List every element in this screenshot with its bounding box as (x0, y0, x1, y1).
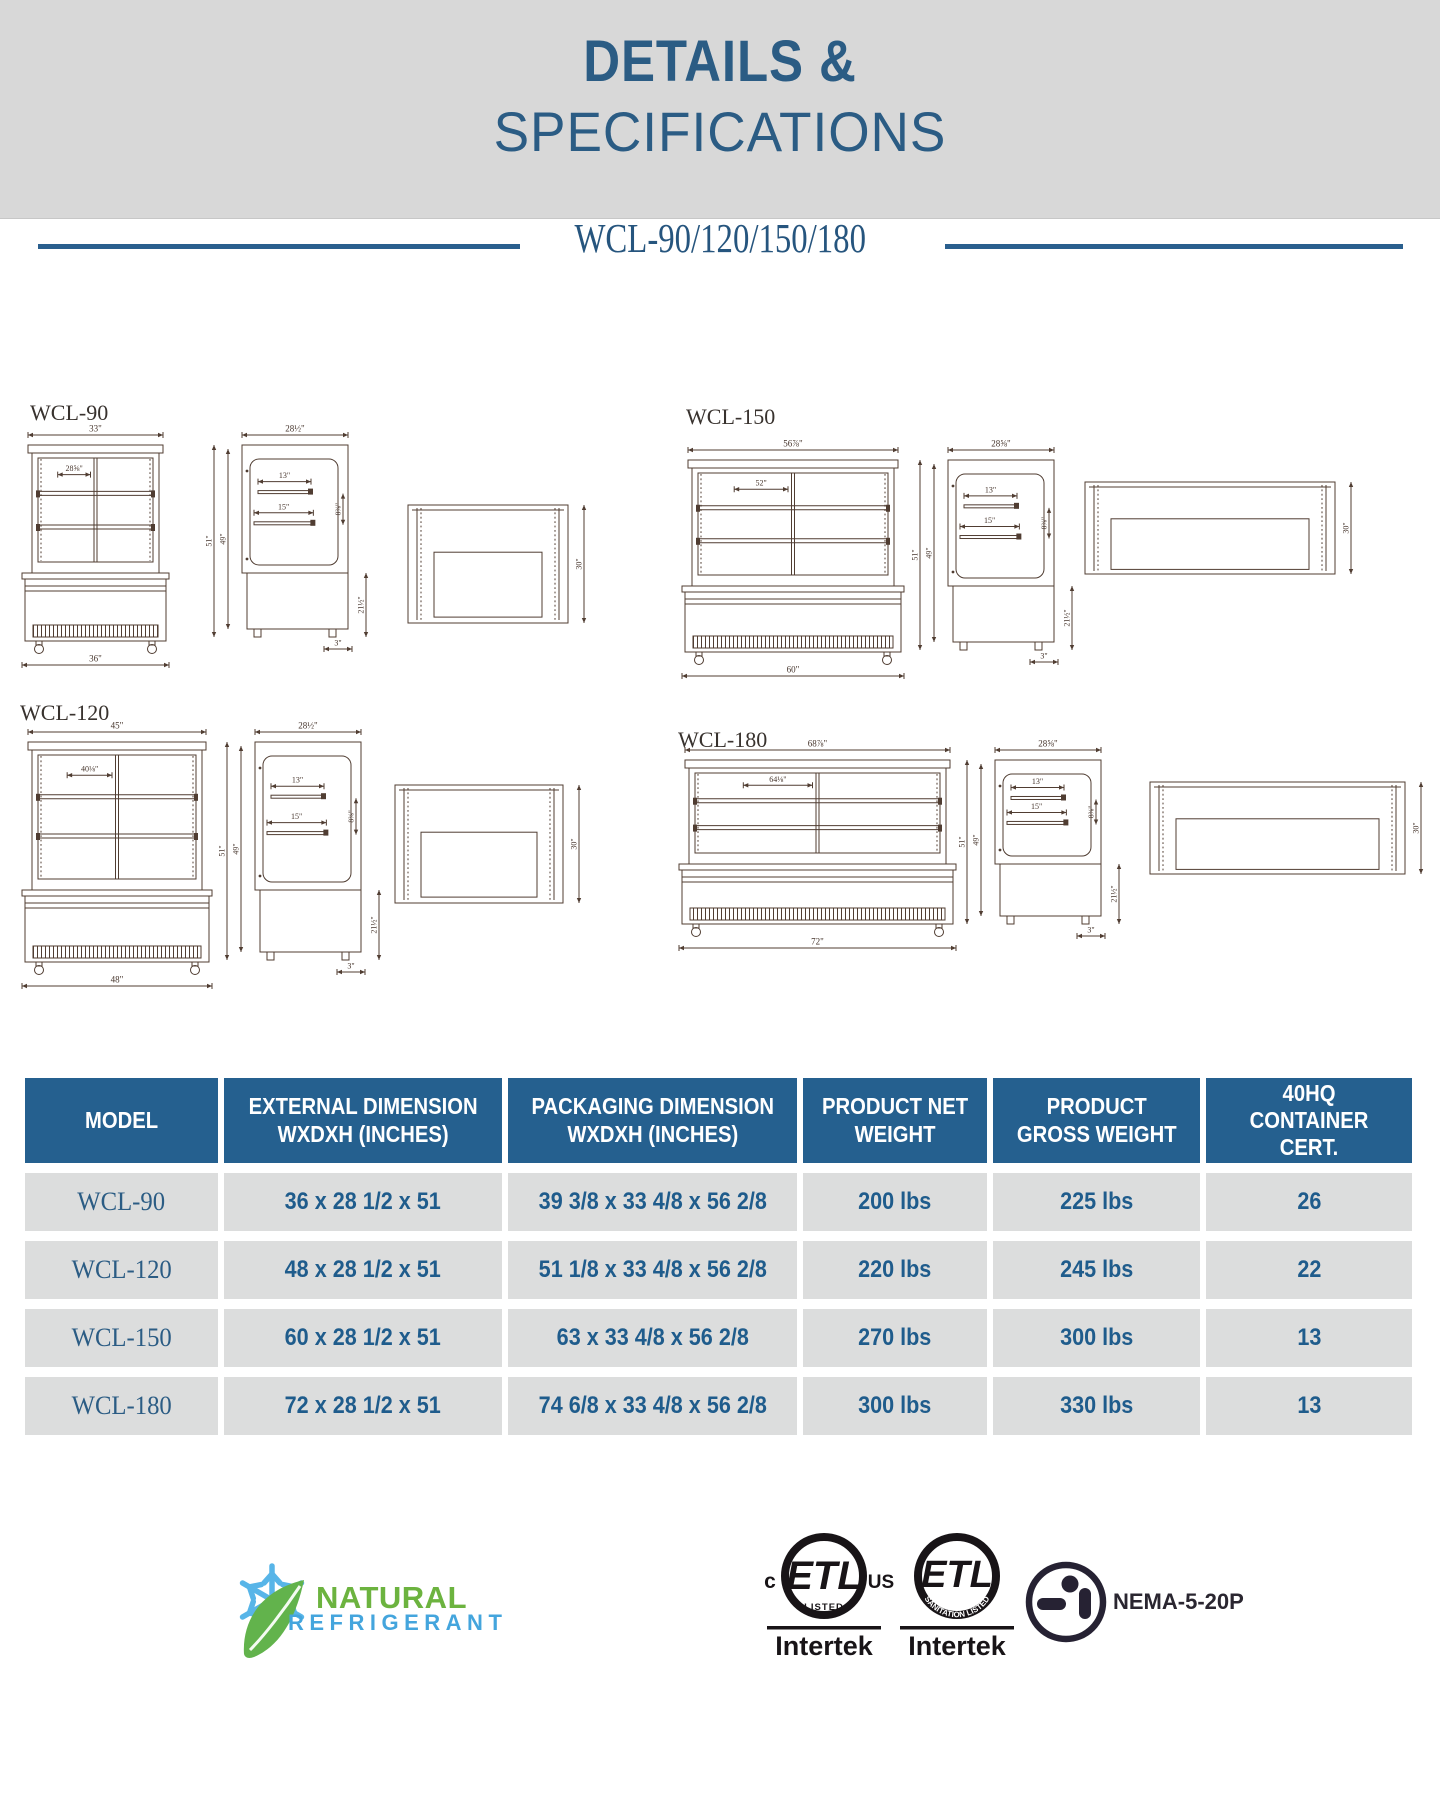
col-header-net: PRODUCT NET WEIGHT (803, 1078, 987, 1163)
svg-text:15": 15" (278, 502, 289, 511)
svg-text:13": 13" (985, 485, 996, 494)
natural-refrigerant-logo: NATURAL REFRIGERANT (222, 1560, 522, 1655)
svg-text:21½": 21½" (357, 596, 366, 613)
wcl-90-cert: 26 (1206, 1173, 1412, 1231)
svg-text:64⅛": 64⅛" (769, 775, 786, 784)
svg-text:49": 49" (219, 533, 228, 544)
svg-text:33": 33" (89, 424, 102, 434)
wcl-150-technical-drawing: WCL-15056⅞"52"60"28⅝"13"15"8⅜"21½"3"51"4… (682, 404, 1353, 679)
svg-text:ETL: ETL (786, 1554, 862, 1598)
svg-text:3": 3" (1040, 652, 1047, 661)
svg-text:60": 60" (787, 665, 800, 675)
wcl-180-packaging: 74 6/8 x 33 4/8 x 56 2/8 (508, 1377, 797, 1435)
wcl-180-model: WCL-180 (25, 1377, 218, 1435)
svg-text:Intertek: Intertek (775, 1631, 874, 1660)
svg-text:SANITATION LISTED: SANITATION LISTED (923, 1594, 992, 1619)
svg-text:48": 48" (111, 975, 124, 985)
wcl-150-cert: 13 (1206, 1309, 1412, 1367)
wcl-180-gross: 330 lbs (993, 1377, 1200, 1435)
wcl-90-gross: 225 lbs (993, 1173, 1200, 1231)
svg-text:28⅝": 28⅝" (65, 464, 82, 473)
technical-drawings: WCL-9033"28⅝"36"28½"13"15"8⅜"21½"3"51"49… (0, 0, 1440, 1040)
svg-text:30": 30" (575, 558, 584, 569)
wcl-120-net: 220 lbs (803, 1241, 987, 1299)
svg-text:13": 13" (292, 776, 303, 785)
wcl-180-technical-drawing: WCL-18068⅞"64⅛"72"28⅝"13"15"8⅜"21½"3"51"… (678, 727, 1423, 951)
svg-text:51": 51" (205, 535, 214, 546)
svg-text:30": 30" (570, 838, 579, 849)
wcl-120-gross: 245 lbs (993, 1241, 1200, 1299)
svg-text:56⅞": 56⅞" (783, 439, 803, 449)
svg-text:WCL-90: WCL-90 (30, 400, 108, 425)
svg-text:45": 45" (111, 721, 124, 731)
svg-text:30": 30" (1342, 522, 1351, 533)
wcl-180-external: 72 x 28 1/2 x 51 (224, 1377, 502, 1435)
svg-text:21½": 21½" (1063, 609, 1072, 626)
wcl-150-external: 60 x 28 1/2 x 51 (224, 1309, 502, 1367)
spec-table: MODELEXTERNAL DIMENSION WXDXH (INCHES)PA… (25, 1078, 1412, 1435)
wcl-180-net: 300 lbs (803, 1377, 987, 1435)
svg-text:8⅜": 8⅜" (347, 810, 356, 822)
wcl-180-cert: 13 (1206, 1377, 1412, 1435)
etl-listed-us-mark: ETL c US LISTED Intertek (739, 1526, 909, 1660)
svg-text:c: c (764, 1570, 776, 1593)
svg-text:51": 51" (218, 845, 227, 856)
svg-text:8⅜": 8⅜" (1087, 806, 1096, 818)
wcl-90-technical-drawing: WCL-9033"28⅝"36"28½"13"15"8⅜"21½"3"51"49… (22, 400, 586, 668)
wcl-90-model: WCL-90 (25, 1173, 218, 1231)
wcl-150-packaging: 63 x 33 4/8 x 56 2/8 (508, 1309, 797, 1367)
refrigerant-word: REFRIGERANT (288, 1610, 507, 1636)
wcl-90-packaging: 39 3/8 x 33 4/8 x 56 2/8 (508, 1173, 797, 1231)
svg-text:15": 15" (291, 812, 302, 821)
col-header-model: MODEL (25, 1078, 218, 1163)
svg-text:36": 36" (89, 654, 102, 664)
svg-text:28⅝": 28⅝" (1038, 739, 1058, 749)
svg-text:68⅞": 68⅞" (808, 739, 828, 749)
col-header-cert: 40HQ CONTAINER CERT. (1206, 1078, 1412, 1163)
wcl-90-external: 36 x 28 1/2 x 51 (224, 1173, 502, 1231)
svg-text:28½": 28½" (285, 424, 305, 434)
svg-text:15": 15" (1031, 802, 1042, 811)
svg-text:49": 49" (232, 843, 241, 854)
wcl-90-net: 200 lbs (803, 1173, 987, 1231)
svg-text:WCL-150: WCL-150 (686, 404, 775, 429)
svg-text:15": 15" (984, 516, 995, 525)
svg-text:WCL-120: WCL-120 (20, 700, 109, 725)
svg-text:30": 30" (1412, 822, 1421, 833)
svg-text:3": 3" (347, 962, 354, 971)
svg-text:40⅛": 40⅛" (81, 765, 98, 774)
svg-text:13": 13" (279, 471, 290, 480)
svg-text:21½": 21½" (370, 916, 379, 933)
svg-text:52": 52" (755, 479, 766, 488)
svg-text:Intertek: Intertek (908, 1631, 1007, 1660)
svg-text:28⅝": 28⅝" (991, 439, 1011, 449)
svg-text:28½": 28½" (298, 721, 318, 731)
wcl-150-model: WCL-150 (25, 1309, 218, 1367)
svg-text:51": 51" (958, 836, 967, 847)
svg-text:49": 49" (972, 834, 981, 845)
nema-label: NEMA-5-20P (1113, 1589, 1244, 1615)
wcl-120-cert: 22 (1206, 1241, 1412, 1299)
svg-text:49": 49" (925, 547, 934, 558)
svg-text:72": 72" (811, 937, 824, 947)
svg-text:ETL: ETL (921, 1554, 993, 1596)
etl-sanitation-mark: ETL SANITATION LISTED Intertek (887, 1526, 1027, 1660)
col-header-packaging: PACKAGING DIMENSION WXDXH (INCHES) (508, 1078, 797, 1163)
svg-text:LISTED: LISTED (804, 1602, 844, 1613)
svg-text:3": 3" (334, 639, 341, 648)
svg-text:13": 13" (1032, 777, 1043, 786)
nema-5-20p-icon (1023, 1559, 1109, 1645)
svg-text:8⅜": 8⅜" (334, 503, 343, 515)
wcl-120-packaging: 51 1/8 x 33 4/8 x 56 2/8 (508, 1241, 797, 1299)
svg-text:3": 3" (1087, 926, 1094, 935)
wcl-150-gross: 300 lbs (993, 1309, 1200, 1367)
wcl-120-model: WCL-120 (25, 1241, 218, 1299)
wcl-120-technical-drawing: WCL-12045"40⅛"48"28½"13"15"8⅜"21½"3"51"4… (20, 700, 581, 989)
svg-text:51": 51" (911, 549, 920, 560)
svg-text:8⅜": 8⅜" (1040, 517, 1049, 529)
wcl-120-external: 48 x 28 1/2 x 51 (224, 1241, 502, 1299)
svg-text:WCL-180: WCL-180 (678, 727, 767, 752)
svg-text:21½": 21½" (1110, 885, 1119, 902)
col-header-external: EXTERNAL DIMENSION WXDXH (INCHES) (224, 1078, 502, 1163)
col-header-gross: PRODUCT GROSS WEIGHT (993, 1078, 1200, 1163)
wcl-150-net: 270 lbs (803, 1309, 987, 1367)
